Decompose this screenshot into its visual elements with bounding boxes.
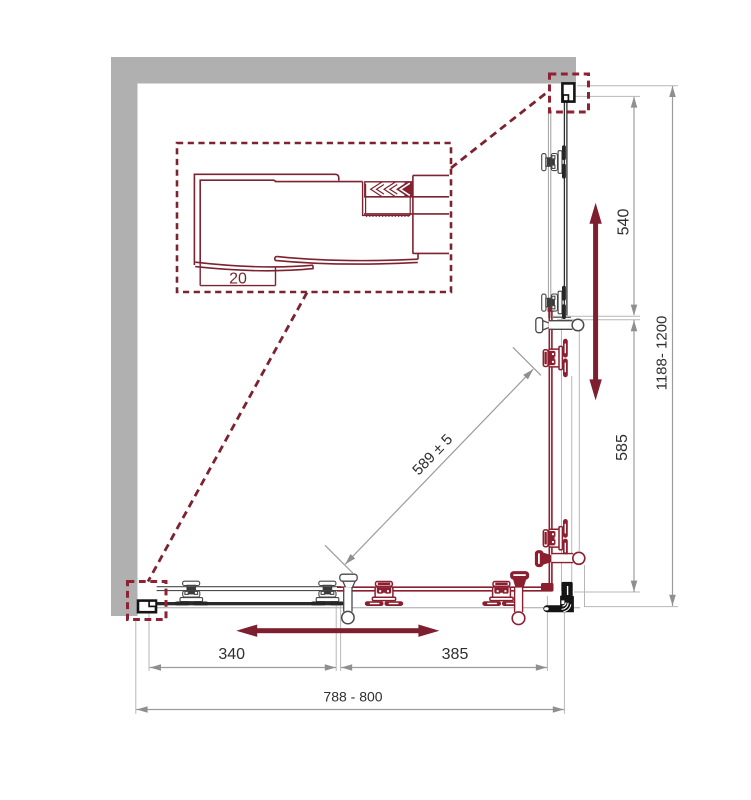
svg-text:788 - 800: 788 - 800 [323,689,382,705]
svg-text:20: 20 [229,271,247,288]
svg-text:385: 385 [442,646,469,663]
svg-text:1188- 1200: 1188- 1200 [653,316,670,391]
svg-text:340: 340 [218,646,245,663]
svg-text:585: 585 [614,434,631,461]
svg-text:540: 540 [615,209,632,236]
